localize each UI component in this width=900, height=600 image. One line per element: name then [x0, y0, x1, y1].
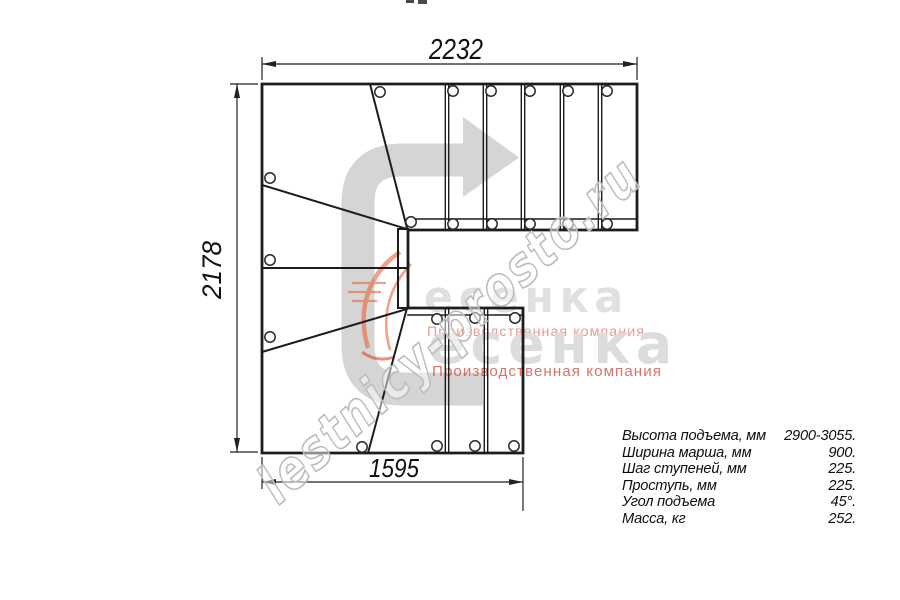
spec-row-width: Ширина марша, мм 900. — [622, 445, 856, 462]
spec-value: 900. — [828, 445, 856, 462]
spec-row-angle: Угол подъема 45°. — [622, 494, 856, 511]
spec-row-height: Высота подъема, мм 2900-3055. — [622, 428, 856, 445]
spec-label: Угол подъема — [622, 494, 715, 511]
dim-bottom-value: 1595 — [369, 453, 419, 483]
dim-left-value: 2178 — [197, 241, 227, 300]
spec-label: Высота подъема, мм — [622, 428, 766, 445]
center-column — [398, 229, 408, 308]
specs-table: Высота подъема, мм 2900-3055. Ширина мар… — [622, 428, 856, 528]
spec-label: Шаг ступеней, мм — [622, 461, 747, 478]
spec-value: 2900-3055. — [784, 428, 856, 445]
logo-tagline-row2: Производственная компания — [432, 364, 662, 380]
spec-value: 45°. — [831, 494, 856, 511]
spec-value: 225. — [828, 478, 856, 495]
spec-value: 252. — [828, 511, 856, 528]
cropped-top-fragment — [406, 0, 427, 4]
spec-row-mass: Масса, кг 252. — [622, 511, 856, 528]
dim-top-value: 2232 — [428, 34, 483, 66]
spec-label: Масса, кг — [622, 511, 686, 528]
spec-value: 225. — [828, 461, 856, 478]
spec-row-tread: Проступь, мм 225. — [622, 478, 856, 495]
stair-plan-drawing: есенка Производственная компания есенка … — [0, 0, 900, 600]
direction-arrow-head — [463, 117, 519, 197]
spec-label: Ширина марша, мм — [622, 445, 751, 462]
spec-label: Проступь, мм — [622, 478, 717, 495]
dimension-left — [230, 84, 258, 452]
spec-row-step: Шаг ступеней, мм 225. — [622, 461, 856, 478]
